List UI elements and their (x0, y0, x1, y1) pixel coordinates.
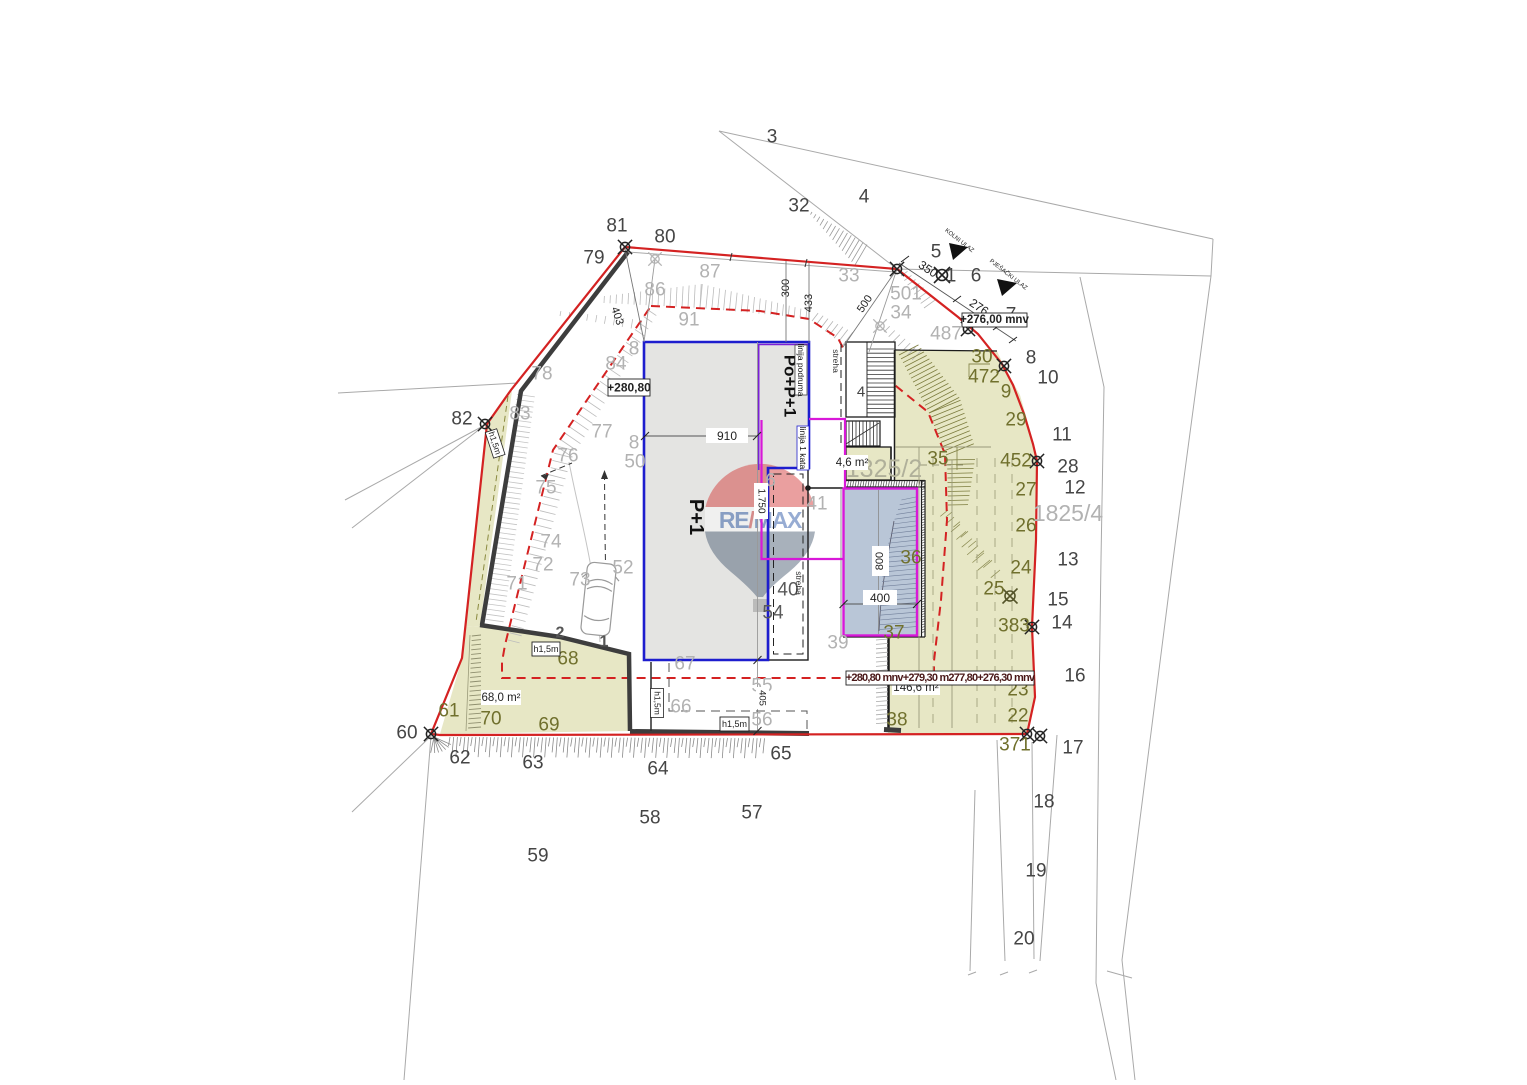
svg-text:17: 17 (1062, 738, 1083, 759)
svg-text:11: 11 (1052, 425, 1072, 446)
svg-text:501: 501 (890, 284, 922, 305)
svg-text:8: 8 (629, 339, 640, 360)
svg-text:22: 22 (1007, 706, 1028, 727)
svg-text:73: 73 (569, 570, 590, 591)
svg-text:P+1: P+1 (685, 499, 707, 535)
svg-text:+280,80 mnv+279,30 m277,80+276: +280,80 mnv+279,30 m277,80+276,30 mnv (846, 672, 1036, 684)
svg-text:910: 910 (717, 429, 737, 443)
svg-text:6: 6 (971, 266, 982, 287)
svg-text:1: 1 (946, 266, 957, 287)
svg-text:78: 78 (531, 364, 552, 385)
svg-text:1: 1 (600, 634, 609, 651)
svg-text:2: 2 (556, 625, 565, 642)
svg-text:76: 76 (557, 446, 578, 467)
svg-text:+280,80: +280,80 (607, 381, 651, 395)
svg-text:27: 27 (1015, 480, 1036, 501)
svg-text:81: 81 (606, 216, 627, 237)
svg-text:linija podruma: linija podruma (796, 344, 806, 397)
svg-text:87: 87 (699, 262, 720, 283)
svg-text:32: 32 (788, 196, 809, 217)
svg-text:383: 383 (998, 616, 1030, 637)
svg-text:800: 800 (874, 552, 886, 570)
svg-text:61: 61 (438, 701, 459, 722)
svg-text:84: 84 (605, 354, 627, 375)
svg-text:86: 86 (644, 280, 665, 301)
svg-text:linija 1 kata: linija 1 kata (798, 427, 808, 470)
svg-text:24: 24 (1010, 558, 1032, 579)
svg-text:59: 59 (527, 846, 548, 867)
svg-text:5: 5 (931, 242, 942, 263)
svg-text:35: 35 (927, 449, 948, 470)
svg-text:71: 71 (506, 574, 527, 595)
svg-text:77: 77 (591, 422, 612, 443)
svg-text:28: 28 (1057, 457, 1078, 478)
svg-text:14: 14 (1051, 613, 1073, 634)
svg-text:67: 67 (674, 654, 695, 675)
svg-text:9: 9 (1001, 382, 1012, 403)
svg-text:h1,5m: h1,5m (653, 691, 663, 715)
svg-text:65: 65 (770, 744, 791, 765)
svg-text:82: 82 (451, 409, 472, 430)
svg-text:57: 57 (741, 803, 762, 824)
svg-text:19: 19 (1025, 861, 1046, 882)
svg-text:405: 405 (757, 690, 768, 706)
svg-text:4: 4 (859, 187, 870, 208)
svg-text:29: 29 (1005, 410, 1026, 431)
svg-text:streha: streha (831, 349, 841, 373)
svg-text:60: 60 (396, 723, 417, 744)
svg-text:70: 70 (480, 709, 501, 730)
svg-text:h1,5m: h1,5m (722, 719, 747, 729)
svg-text:25: 25 (983, 579, 1004, 600)
svg-text:h1,5m: h1,5m (533, 644, 558, 654)
svg-text:62: 62 (449, 748, 470, 769)
svg-text:36: 36 (900, 548, 921, 569)
svg-text:79: 79 (583, 248, 604, 269)
svg-text:20: 20 (1013, 929, 1034, 950)
svg-text:streha: streha (794, 571, 804, 595)
svg-text:75: 75 (535, 478, 556, 499)
svg-text:472: 472 (968, 367, 1000, 388)
svg-text:3: 3 (767, 127, 778, 148)
svg-text:1.750: 1.750 (756, 488, 767, 513)
svg-text:433: 433 (803, 294, 815, 312)
svg-text:68: 68 (557, 649, 578, 670)
svg-text:300: 300 (780, 279, 792, 297)
svg-text:371: 371 (999, 735, 1031, 756)
svg-text:400: 400 (870, 591, 890, 605)
svg-text:16: 16 (1064, 666, 1085, 687)
svg-text:13: 13 (1057, 550, 1078, 571)
svg-text:487: 487 (930, 324, 962, 345)
svg-text:12: 12 (1064, 478, 1085, 499)
svg-text:4: 4 (857, 384, 865, 401)
svg-text:68,0 m²: 68,0 m² (482, 692, 521, 704)
svg-text:37: 37 (883, 623, 904, 644)
svg-text:58: 58 (639, 808, 660, 829)
svg-text:41: 41 (806, 494, 827, 515)
svg-text:74: 74 (540, 532, 562, 553)
svg-text:39: 39 (827, 633, 848, 654)
svg-text:15: 15 (1047, 590, 1068, 611)
svg-text:33: 33 (838, 266, 859, 287)
svg-text:18: 18 (1033, 792, 1054, 813)
svg-text:54: 54 (762, 603, 784, 624)
svg-text:66: 66 (670, 697, 691, 718)
svg-text:56: 56 (751, 710, 772, 731)
svg-text:72: 72 (532, 555, 553, 576)
svg-text:30: 30 (971, 347, 992, 368)
svg-text:83: 83 (509, 404, 530, 425)
svg-text:34: 34 (890, 303, 912, 324)
svg-text:50: 50 (624, 452, 645, 473)
svg-text:69: 69 (538, 715, 559, 736)
svg-text:52: 52 (612, 558, 633, 579)
svg-text:8: 8 (629, 433, 640, 454)
svg-text:10: 10 (1037, 368, 1058, 389)
svg-text:452: 452 (1000, 451, 1032, 472)
svg-text:1825/4: 1825/4 (1033, 500, 1104, 526)
svg-text:64: 64 (647, 759, 669, 780)
svg-text:91: 91 (678, 310, 699, 331)
svg-text:8: 8 (1026, 348, 1037, 369)
svg-text:63: 63 (522, 753, 543, 774)
svg-text:4,6 m²: 4,6 m² (836, 457, 869, 469)
svg-text:+276,00 mnv: +276,00 mnv (960, 314, 1029, 326)
svg-text:38: 38 (886, 710, 907, 731)
svg-text:80: 80 (654, 227, 675, 248)
